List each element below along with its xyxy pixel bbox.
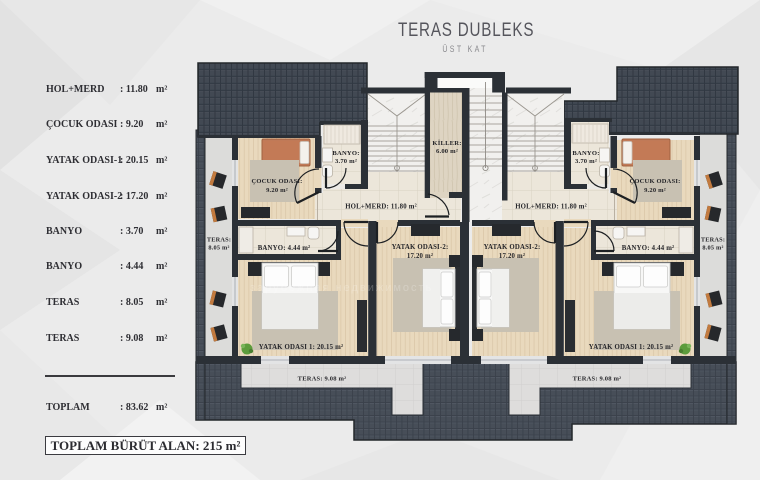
- svg-text:YATAK ODASI 1: 20.15 m²: YATAK ODASI 1: 20.15 m²: [589, 344, 674, 351]
- svg-text:HOL+MERD: 11.80 m²: HOL+MERD: 11.80 m²: [345, 204, 417, 211]
- svg-text:TERAS: 9.08 m²: TERAS: 9.08 m²: [298, 376, 347, 383]
- svg-text:BANYO:: BANYO:: [332, 150, 359, 157]
- svg-text:BANYO: 4.44 m²: BANYO: 4.44 m²: [258, 245, 311, 252]
- svg-text:6.00 m²: 6.00 m²: [436, 148, 458, 155]
- svg-text:17.20 m²: 17.20 m²: [407, 253, 433, 260]
- svg-text:YATAK ODASI 1: 20.15 m²: YATAK ODASI 1: 20.15 m²: [259, 344, 344, 351]
- svg-text:3.70 m²: 3.70 m²: [335, 158, 357, 165]
- svg-text:9.20 m²: 9.20 m²: [644, 187, 666, 194]
- svg-text:9.20 m²: 9.20 m²: [266, 187, 288, 194]
- svg-text:17.20 m²: 17.20 m²: [499, 253, 525, 260]
- svg-text:BANYO:: BANYO:: [572, 150, 599, 157]
- svg-text:ÇOCUK ODASI:: ÇOCUK ODASI:: [630, 178, 681, 185]
- svg-text:KİLLER:: KİLLER:: [432, 140, 461, 147]
- svg-text:8.05 m²: 8.05 m²: [702, 245, 723, 252]
- svg-text:HOL+MERD: 11.80 m²: HOL+MERD: 11.80 m²: [515, 204, 587, 211]
- svg-text:8.05 m²: 8.05 m²: [208, 245, 229, 252]
- svg-text:ÇOCUK ODASI:: ÇOCUK ODASI:: [252, 178, 303, 185]
- svg-text:зарубежная недвижимость: зарубежная недвижимость: [250, 282, 433, 294]
- svg-text:TERAS: 9.08 m²: TERAS: 9.08 m²: [573, 376, 622, 383]
- svg-text:YATAK ODASI-2:: YATAK ODASI-2:: [392, 244, 449, 251]
- svg-text:3.70 m²: 3.70 m²: [575, 158, 597, 165]
- svg-text:YATAK ODASI-2:: YATAK ODASI-2:: [484, 244, 541, 251]
- svg-text:TERAS:: TERAS:: [701, 237, 725, 244]
- svg-text:BANYO: 4.44 m²: BANYO: 4.44 m²: [622, 245, 675, 252]
- svg-text:TERAS:: TERAS:: [207, 237, 231, 244]
